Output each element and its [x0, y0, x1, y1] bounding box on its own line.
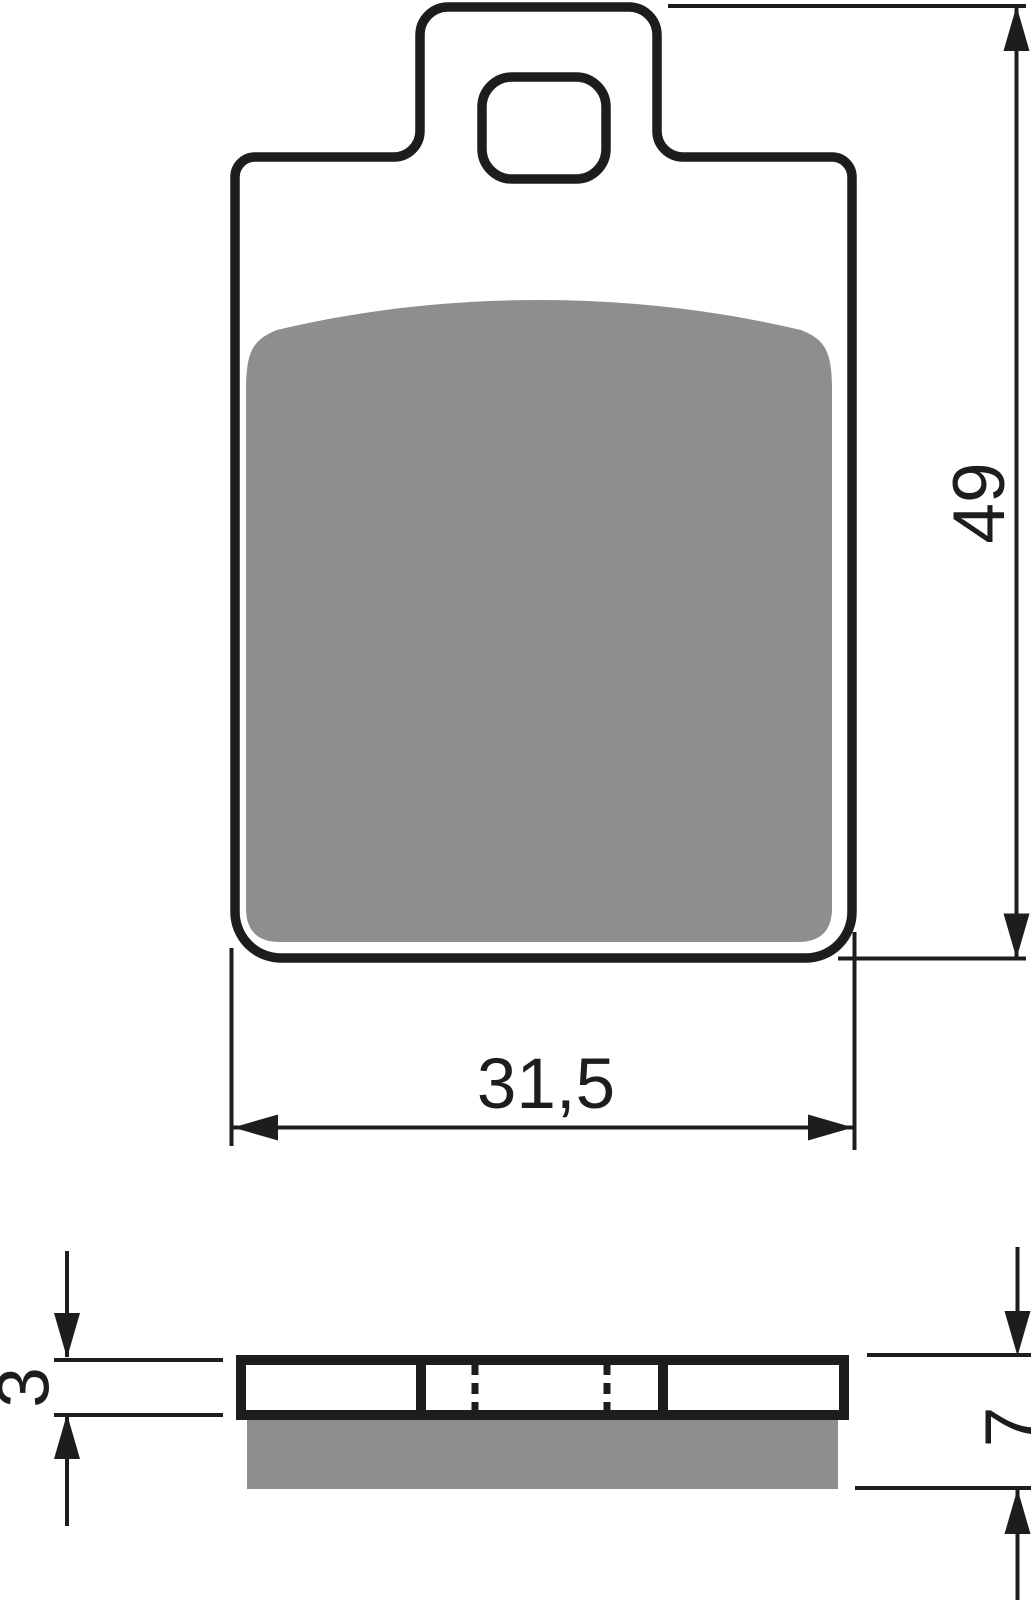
svg-text:3: 3 — [0, 1367, 65, 1408]
svg-text:7: 7 — [971, 1407, 1031, 1448]
svg-text:49: 49 — [939, 462, 1020, 543]
svg-text:31,5: 31,5 — [477, 1045, 615, 1124]
